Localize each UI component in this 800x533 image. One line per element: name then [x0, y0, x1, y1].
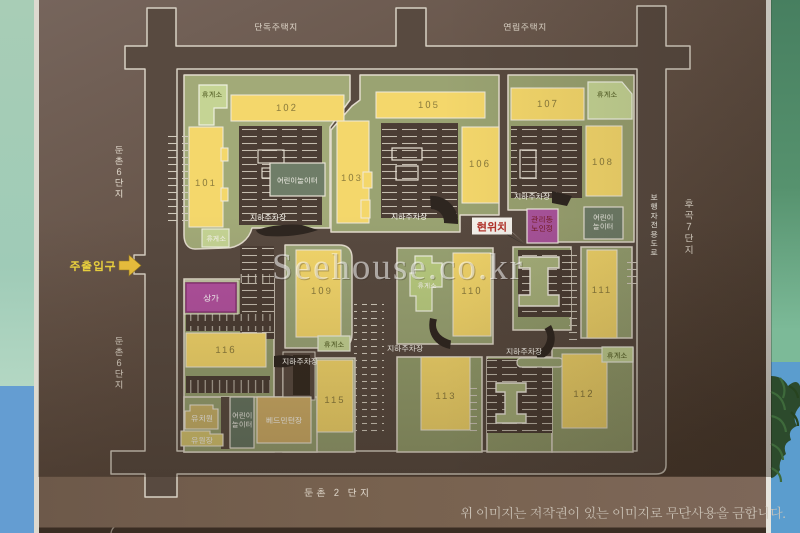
svg-text:둔촌 2 단지: 둔촌 2 단지 — [304, 488, 372, 498]
svg-text:Seehouse.co.kr: Seehouse.co.kr — [272, 247, 524, 288]
svg-text:위 이미지는 저작권이 있는 이미지로 무단사용을 금합니다: 위 이미지는 저작권이 있는 이미지로 무단사용을 금합니다. — [460, 506, 786, 521]
